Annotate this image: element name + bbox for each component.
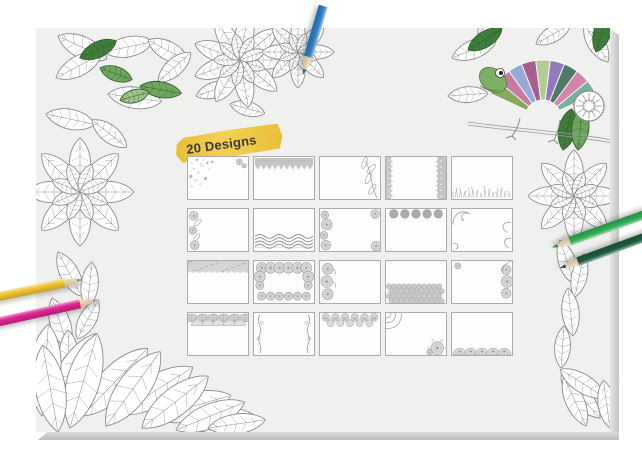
design-card-17 [253, 312, 315, 356]
design-card-4 [385, 156, 447, 200]
design-card-1 [187, 156, 249, 200]
design-card-20 [451, 312, 513, 356]
left-floral-border [188, 209, 248, 251]
right-medallion-border [452, 261, 512, 303]
top-rose-band [320, 313, 380, 355]
bottom-flower-field [386, 261, 446, 303]
corner-swirl-borders [452, 209, 512, 251]
design-card-19 [385, 312, 447, 356]
side-vine-borders [254, 313, 314, 355]
design-card-6 [187, 208, 249, 252]
design-card-16 [187, 312, 249, 356]
bottom-meadow-band [452, 157, 512, 199]
design-card-5 [451, 156, 513, 200]
design-card-18 [319, 312, 381, 356]
side-paisley-borders [386, 157, 446, 199]
diagonal-corner-mandalas [386, 313, 446, 355]
bottom-braid-band [254, 209, 314, 251]
zigzag-top-band [254, 157, 314, 199]
design-card-3 [319, 156, 381, 200]
top-texture-band [188, 261, 248, 303]
bottom-sun-scallops [452, 313, 512, 355]
design-card-11 [187, 260, 249, 304]
design-card-2 [253, 156, 315, 200]
design-card-10 [451, 208, 513, 252]
left-three-medallions [320, 261, 380, 303]
corner-floral-sprays [188, 157, 248, 199]
design-card-9 [385, 208, 447, 252]
design-card-15 [451, 260, 513, 304]
coloring-pad: 20 Designs [36, 28, 610, 432]
designs-grid [187, 156, 513, 356]
design-card-7 [253, 208, 315, 252]
full-floral-wreath [254, 261, 314, 303]
design-card-13 [319, 260, 381, 304]
top-dot-row [386, 209, 446, 251]
product-poster: 20 Designs [0, 0, 642, 450]
left-mandala-border [320, 209, 380, 251]
design-card-8 [319, 208, 381, 252]
design-card-14 [385, 260, 447, 304]
pad-bottom-edge [38, 432, 619, 440]
top-fan-band [188, 313, 248, 355]
design-card-12 [253, 260, 315, 304]
right-leaf-vine [320, 157, 380, 199]
